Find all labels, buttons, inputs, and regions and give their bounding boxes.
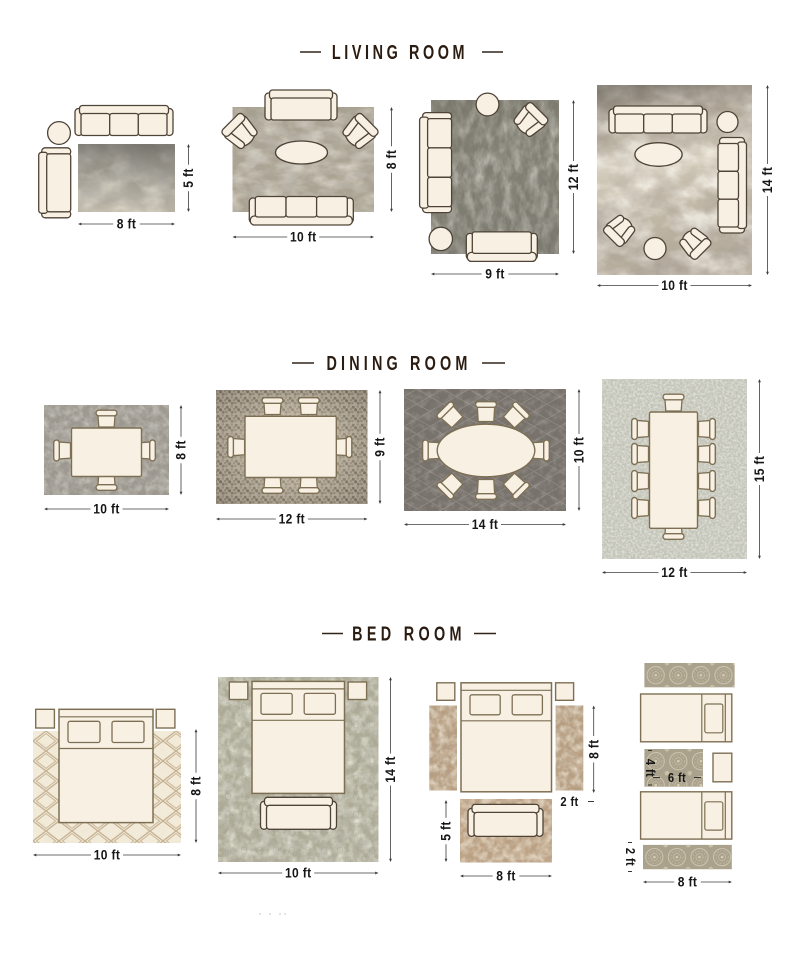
svg-text:10 ft: 10 ft: [285, 865, 312, 881]
svg-text:5 ft: 5 ft: [438, 821, 454, 841]
svg-text:8 ft: 8 ft: [585, 739, 601, 759]
svg-text:8 ft: 8 ft: [117, 216, 137, 232]
svg-text:14 ft: 14 ft: [472, 516, 499, 532]
svg-text:15 ft: 15 ft: [751, 456, 767, 483]
svg-text:12 ft: 12 ft: [661, 564, 688, 580]
svg-text:12 ft: 12 ft: [565, 164, 581, 191]
svg-text:9 ft: 9 ft: [372, 437, 388, 457]
svg-text:8 ft: 8 ft: [383, 150, 399, 170]
svg-text:6 ft: 6 ft: [668, 770, 686, 785]
svg-text:8 ft: 8 ft: [678, 874, 698, 890]
svg-text:LIVING ROOM: LIVING ROOM: [332, 41, 468, 64]
svg-text:2 ft: 2 ft: [560, 794, 578, 809]
svg-text:14 ft: 14 ft: [382, 756, 398, 783]
svg-text:4 ft: 4 ft: [643, 759, 658, 777]
svg-text:10 ft: 10 ft: [661, 277, 688, 293]
svg-text:8 ft: 8 ft: [173, 440, 189, 460]
svg-text:10 ft: 10 ft: [94, 847, 121, 863]
svg-text:10 ft: 10 ft: [571, 437, 587, 464]
svg-text:14 ft: 14 ft: [759, 167, 775, 194]
svg-text:9 ft: 9 ft: [485, 266, 505, 282]
svg-text:8 ft: 8 ft: [496, 868, 516, 884]
svg-text:DINING ROOM: DINING ROOM: [326, 352, 471, 375]
svg-text:12 ft: 12 ft: [279, 511, 306, 527]
svg-text:8 ft: 8 ft: [188, 776, 204, 796]
svg-text:BED ROOM: BED ROOM: [352, 622, 466, 645]
svg-text:5 ft: 5 ft: [180, 168, 196, 188]
svg-text:10 ft: 10 ft: [93, 501, 120, 517]
svg-text:10 ft: 10 ft: [290, 229, 317, 245]
svg-text:2 ft: 2 ft: [623, 848, 638, 866]
